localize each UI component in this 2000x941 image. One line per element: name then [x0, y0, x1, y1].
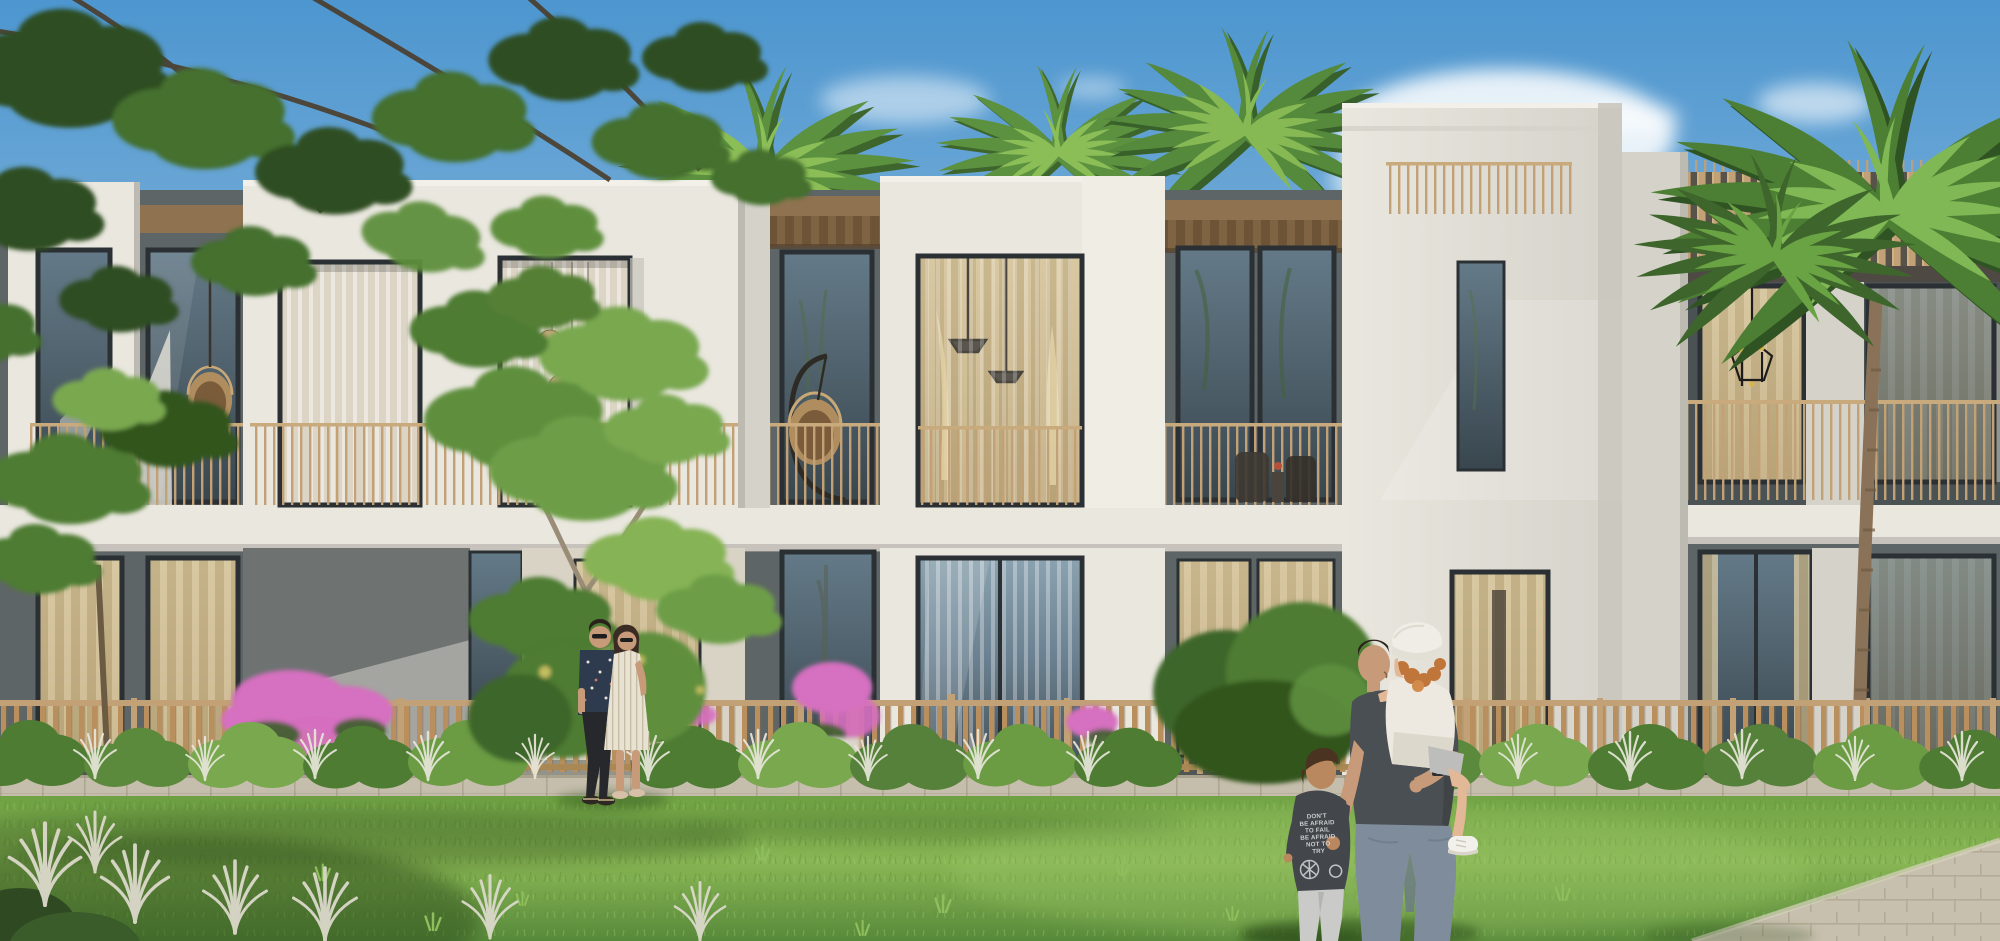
tower-narrow-window — [1458, 262, 1504, 470]
tower-volume — [1342, 103, 1622, 782]
daughter-sneaker — [1448, 836, 1478, 856]
right-balcony-railing — [1688, 400, 2000, 500]
sunglasses — [592, 634, 607, 639]
scene-illustration: DON'T BE AFRAID TO FAIL BE AFRAID NOT TO… — [0, 0, 2000, 941]
daughter-bonnet — [1392, 622, 1442, 660]
pergola-left — [768, 196, 882, 249]
sunglasses — [620, 638, 633, 642]
timber-fascia — [140, 205, 243, 233]
svg-text:TRY: TRY — [1312, 848, 1326, 856]
rendering-canvas: DON'T BE AFRAID TO FAIL BE AFRAID NOT TO… — [0, 0, 2000, 941]
white-pier — [745, 178, 770, 508]
roof-terrace-railing — [1386, 162, 1572, 214]
pergola-right — [1165, 200, 1342, 253]
